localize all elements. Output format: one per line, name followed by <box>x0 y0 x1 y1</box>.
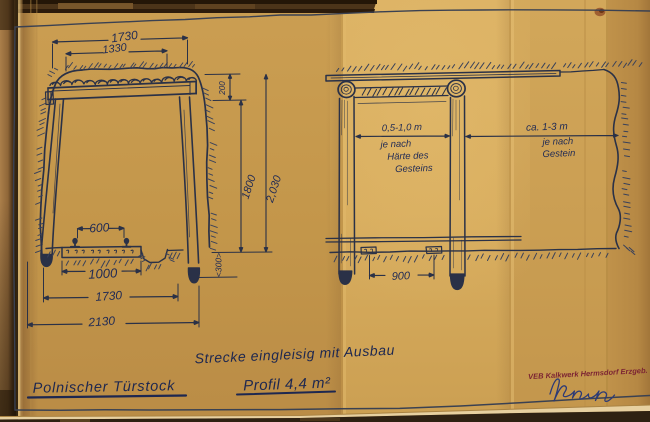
svg-text:<300>: <300> <box>214 253 224 277</box>
svg-text:Härte des: Härte des <box>387 150 429 162</box>
svg-text:Gestein: Gestein <box>542 148 575 160</box>
svg-text:1730: 1730 <box>95 288 123 304</box>
svg-text:je nach: je nach <box>540 136 573 148</box>
svg-text:1000: 1000 <box>88 265 118 282</box>
svg-text:0,5-1,0 m: 0,5-1,0 m <box>382 122 423 134</box>
svg-text:2130: 2130 <box>87 314 116 330</box>
svg-text:Polnischer Türstock: Polnischer Türstock <box>33 378 176 396</box>
svg-text:je nach: je nach <box>378 138 411 150</box>
svg-text:900: 900 <box>392 270 412 283</box>
svg-text:200: 200 <box>218 81 227 96</box>
svg-text:Gesteins: Gesteins <box>395 163 433 175</box>
svg-text:ca. 1-3 m: ca. 1-3 m <box>526 121 568 133</box>
svg-text:600: 600 <box>89 220 110 235</box>
